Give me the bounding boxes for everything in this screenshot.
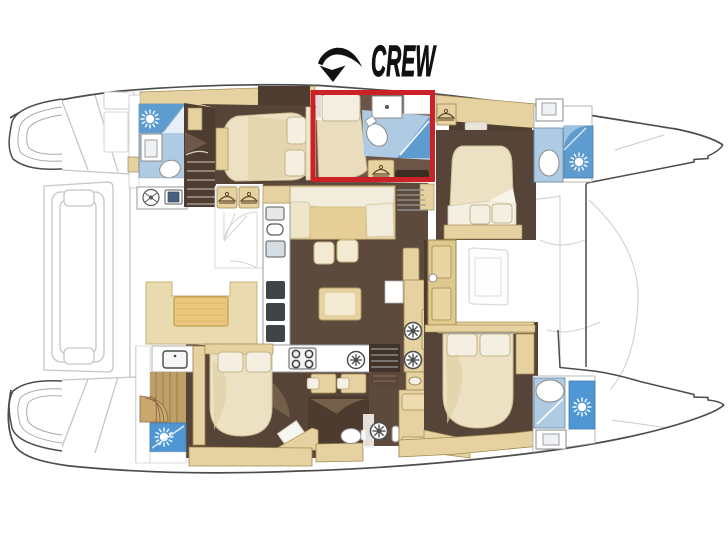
svg-text:CREW: CREW (371, 37, 437, 86)
